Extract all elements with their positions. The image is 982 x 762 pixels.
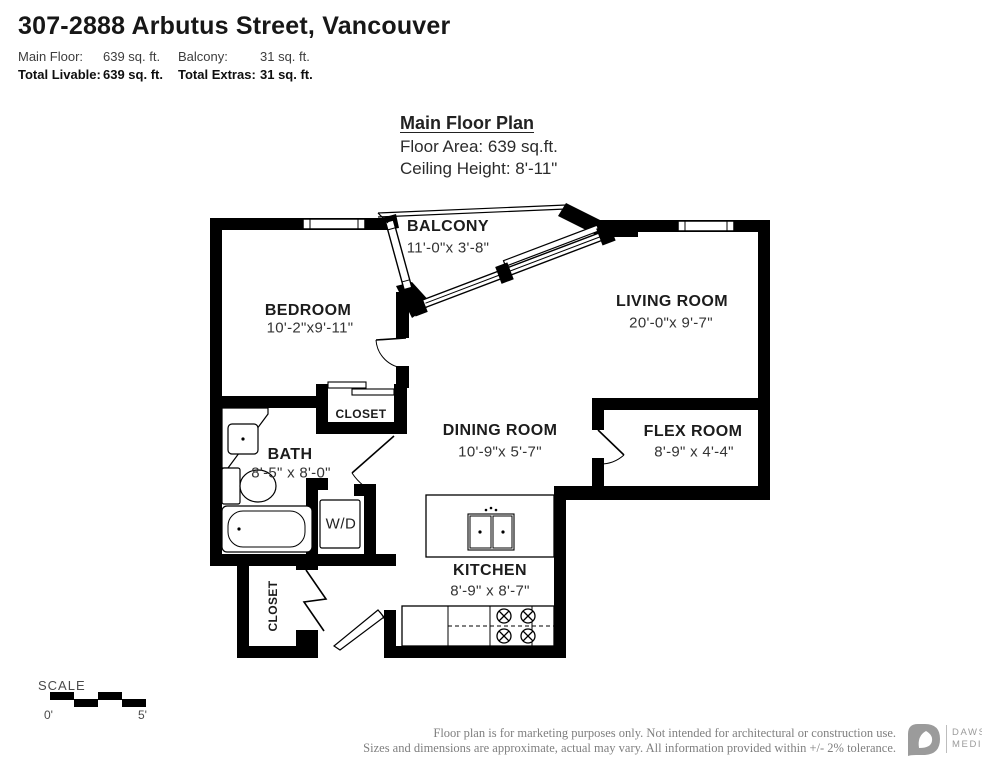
room-label-bath: BATH (268, 446, 313, 464)
footer-line2: Sizes and dimensions are approximate, ac… (336, 741, 896, 756)
room-label-wd: W/D (326, 516, 357, 533)
scale-end: 5' (138, 708, 147, 722)
room-label-closet-lower: CLOSET (266, 580, 280, 631)
floorplan-page: { "header": { "title": "307-2888 Arbutus… (0, 0, 982, 762)
room-dims-bath: 8'-5" x 8'-0" (251, 465, 330, 482)
room-label-closet-upper: CLOSET (335, 407, 386, 421)
room-label-balcony: BALCONY (407, 218, 489, 236)
total-extras-value: 31 sq. ft. (260, 67, 313, 82)
total-livable-value: 639 sq. ft. (103, 67, 163, 82)
main-floor-label: Main Floor: (18, 49, 83, 64)
scale-label: SCALE (38, 678, 86, 693)
closet-sliding-door-icon (328, 382, 394, 395)
room-label-dining-room: DINING ROOM (443, 422, 558, 440)
vanity-sink-icon (222, 408, 268, 468)
scale-start: 0' (44, 708, 53, 722)
room-label-bedroom: BEDROOM (265, 302, 351, 320)
kitchen-island (426, 495, 554, 557)
closet-bifold-door-icon (304, 570, 326, 631)
total-livable-label: Total Livable: (18, 67, 101, 82)
room-dims-bedroom: 10'-2"x9'-11" (267, 320, 354, 337)
bathtub-icon (222, 506, 312, 552)
room-label-living-room: LIVING ROOM (616, 293, 728, 311)
room-dims-flex-room: 8'-9" x 4'-4" (654, 444, 733, 461)
plan-title: Main Floor Plan (400, 113, 534, 134)
bedroom-window-icon (303, 219, 365, 229)
brand-text: DAWSON MEDIA (952, 727, 982, 751)
brand-name: DAWSON (952, 727, 982, 739)
room-dims-balcony: 11'-0"x 3'-8" (407, 240, 490, 257)
scale-bar (50, 692, 146, 707)
balcony-label: Balcony: (178, 49, 228, 64)
plan-ceiling-height: Ceiling Height: 8'-11" (400, 159, 557, 179)
entry-opening (318, 644, 384, 660)
bedroom-door-icon (376, 338, 406, 368)
room-label-flex-room: FLEX ROOM (644, 423, 743, 441)
brand-divider (946, 725, 947, 753)
plan-floor-area: Floor Area: 639 sq.ft. (400, 137, 558, 157)
footer-line1: Floor plan is for marketing purposes onl… (336, 726, 896, 741)
bath-door-icon (352, 436, 394, 486)
total-extras-label: Total Extras: (178, 67, 256, 82)
main-floor-value: 639 sq. ft. (103, 49, 160, 64)
room-dims-kitchen: 8'-9" x 8'-7" (450, 583, 529, 600)
room-dims-dining-room: 10'-9"x 5'-7" (458, 444, 542, 461)
living-window-icon (678, 221, 734, 231)
balcony-value: 31 sq. ft. (260, 49, 310, 64)
footer-disclaimer: Floor plan is for marketing purposes onl… (336, 726, 896, 755)
room-dims-living-room: 20'-0"x 9'-7" (629, 315, 713, 332)
brand-sub: MEDIA (952, 739, 982, 751)
kitchen-counter (402, 606, 554, 646)
room-label-kitchen: KITCHEN (453, 562, 527, 580)
dawson-media-logo-icon (908, 724, 940, 756)
page-title: 307-2888 Arbutus Street, Vancouver (18, 12, 450, 41)
